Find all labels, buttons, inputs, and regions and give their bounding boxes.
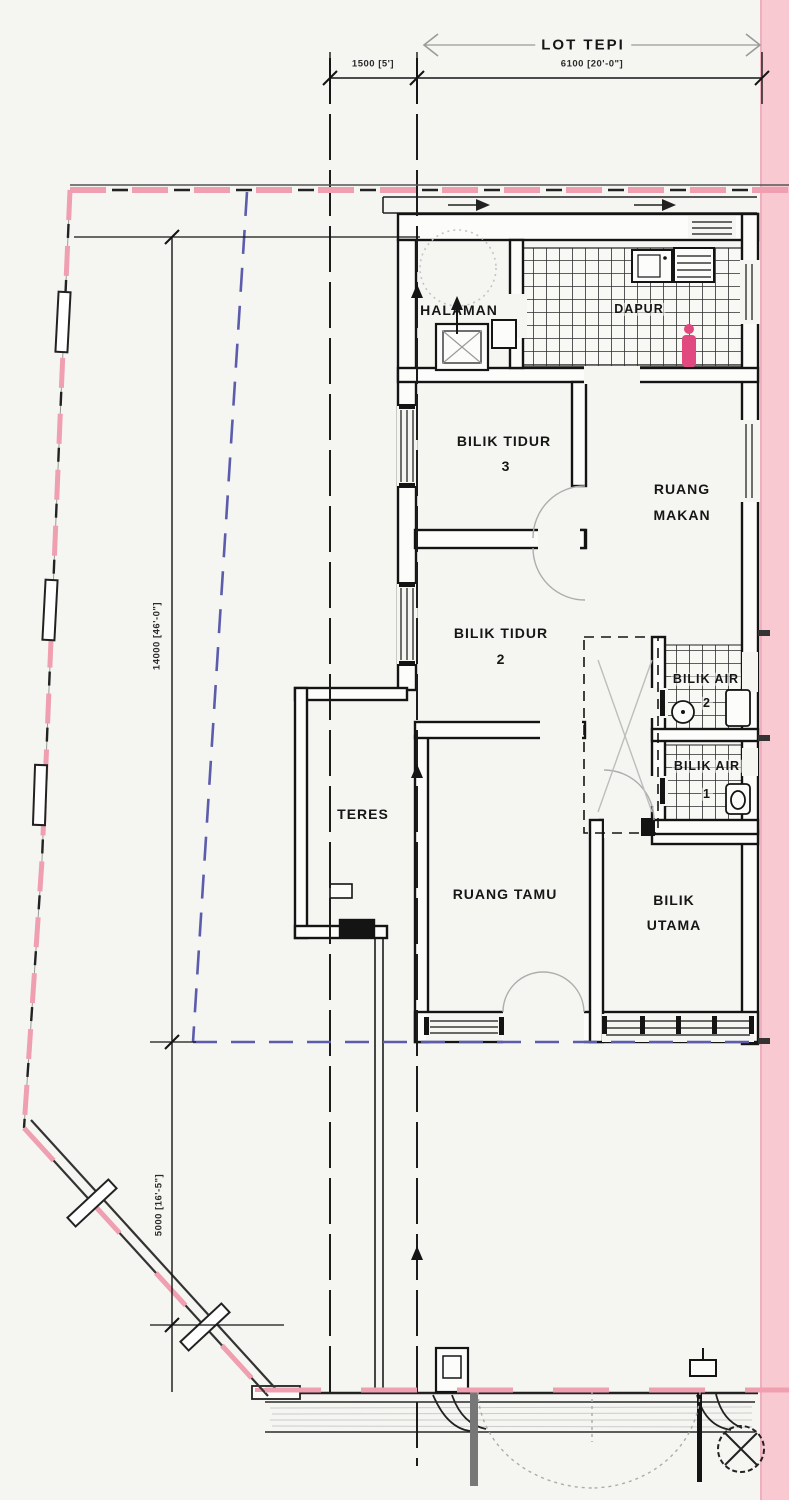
porch-column — [330, 884, 352, 898]
gate-pillar-small — [690, 1348, 716, 1376]
room-label-bilik-utama-2: UTAMA — [647, 918, 702, 932]
room-label-bilik-air-2: BILIK AIR — [671, 673, 741, 686]
room-label-halaman: HALAMAN — [420, 303, 498, 317]
room-label-bilik-tidur-2: BILIK TIDUR — [454, 626, 548, 640]
dim-side-upper: 14000 [46'-0"] — [152, 602, 162, 670]
window-kitchen-right — [740, 260, 760, 324]
floor-plan-canvas: LOT TEPI 1500 [5'] 6100 [20'-0"] 14000 [… — [0, 0, 789, 1500]
porch-top-wall — [295, 688, 407, 700]
window-master-front — [602, 1014, 754, 1042]
master-bedroom-left-wall — [590, 820, 603, 1042]
manhole-icon — [718, 1426, 764, 1472]
window-bath1-right — [742, 748, 758, 776]
road-hatching — [270, 1407, 752, 1427]
door-swing-arcs — [503, 486, 654, 1012]
door-arc-front-left — [503, 972, 543, 1012]
gate-post-right — [697, 1390, 702, 1482]
room-label-bilik-tidur-3-num: 3 — [502, 459, 511, 473]
kitchen-sink-symbol — [632, 248, 714, 282]
room-label-bilik-tidur-3: BILIK TIDUR — [457, 434, 551, 448]
gate-post-left — [470, 1390, 478, 1486]
room-label-bilik-tidur-2-num: 2 — [497, 652, 506, 666]
window-kitchen-rear — [688, 216, 736, 238]
rear-drain-channel — [383, 197, 757, 213]
right-wall — [742, 214, 758, 1044]
boundary-post-marker — [33, 292, 230, 1351]
dim-side-lower: 5000 [16'-5"] — [154, 1174, 164, 1236]
floor-plan-linework — [0, 0, 789, 1500]
room-label-dapur: DAPUR — [612, 303, 665, 316]
room-label-ruang-makan: RUANG — [654, 482, 710, 496]
airwell-dashed-area — [584, 637, 658, 833]
room-label-ruang-makan-2: MAKAN — [653, 508, 710, 522]
room-label-bilik-utama: BILIK — [653, 893, 695, 907]
window-bedroom3 — [397, 404, 417, 488]
bathroom-divider-wall — [652, 729, 758, 741]
side-lot-pink-band — [760, 0, 789, 1500]
drain-flow-arrow — [448, 199, 676, 211]
tree-symbol — [420, 230, 496, 306]
planter-box-symbol — [436, 320, 516, 370]
gate-pillar — [436, 1348, 468, 1392]
room-label-ruang-tamu: RUANG TAMU — [453, 887, 558, 901]
door-arc-bedroom2 — [533, 548, 585, 600]
door-arc-front-right — [543, 972, 584, 1012]
bedroom3-divider-wall — [572, 382, 586, 486]
gate-swing-arcs — [478, 1392, 700, 1488]
lot-tepi-label: LOT TEPI — [535, 38, 631, 53]
shower-tray-symbol — [726, 690, 750, 726]
room-label-bilik-air-1-num: 1 — [701, 788, 713, 801]
porch-left-wall — [295, 688, 307, 938]
room-label-bilik-air-1: BILIK AIR — [672, 760, 742, 773]
window-living-front — [424, 1014, 504, 1040]
toilet-symbol — [726, 784, 750, 814]
room-label-teres: TERES — [337, 807, 389, 821]
room-label-bilik-air-2-num: 2 — [701, 697, 713, 710]
window-bath2-right — [742, 652, 758, 692]
dim-top-left: 1500 [5'] — [352, 59, 394, 69]
wash-basin-symbol — [672, 701, 694, 723]
window-bedroom2 — [397, 582, 417, 666]
dim-top-span: 6100 [20'-0"] — [561, 59, 623, 69]
flow-direction-arrows — [411, 284, 463, 1260]
window-dining-right — [740, 420, 760, 502]
